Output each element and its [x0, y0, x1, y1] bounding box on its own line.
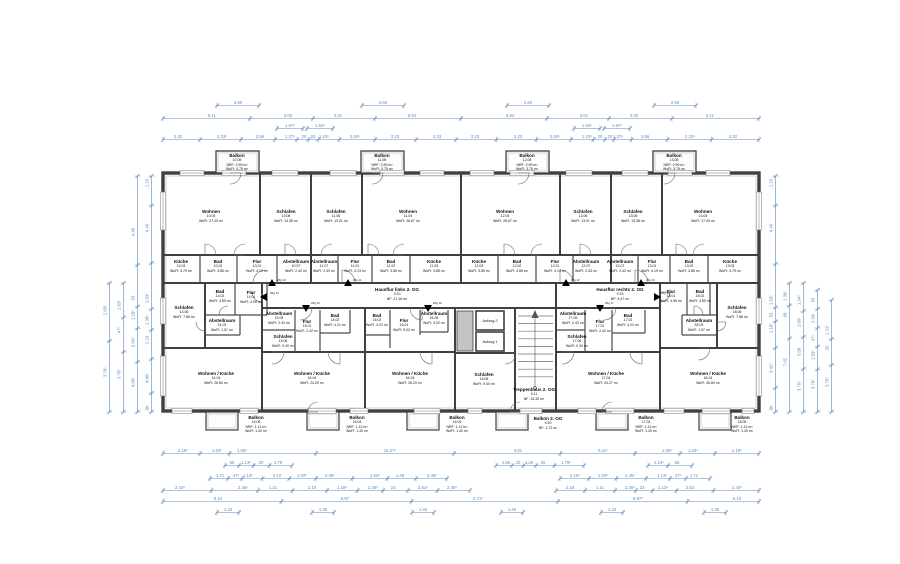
shaft-duct — [457, 311, 473, 351]
elevator-1-box — [476, 332, 504, 351]
floorplan-canvas: Wlg 10Wlg 11Wlg 12Wlg 13Wlg 14Wlg 15Wlg … — [0, 0, 900, 564]
entry-label: Wlg 15 — [311, 301, 320, 305]
entry-label: Wlg 10 — [277, 278, 286, 282]
elevator-2-box — [476, 311, 504, 330]
entry-label: Wlg 12 — [571, 278, 580, 282]
entry-label: Wlg 16 — [433, 301, 442, 305]
entry-label: Wlg 18 — [661, 291, 670, 295]
entry-label: Wlg 17 — [605, 301, 614, 305]
entry-label: Wlg 11 — [353, 278, 362, 282]
floorplan-drawing: Wlg 10Wlg 11Wlg 12Wlg 13Wlg 14Wlg 15Wlg … — [0, 0, 900, 564]
entry-label: Wlg 13 — [646, 278, 655, 282]
entry-label: Wlg 14 — [270, 291, 279, 295]
